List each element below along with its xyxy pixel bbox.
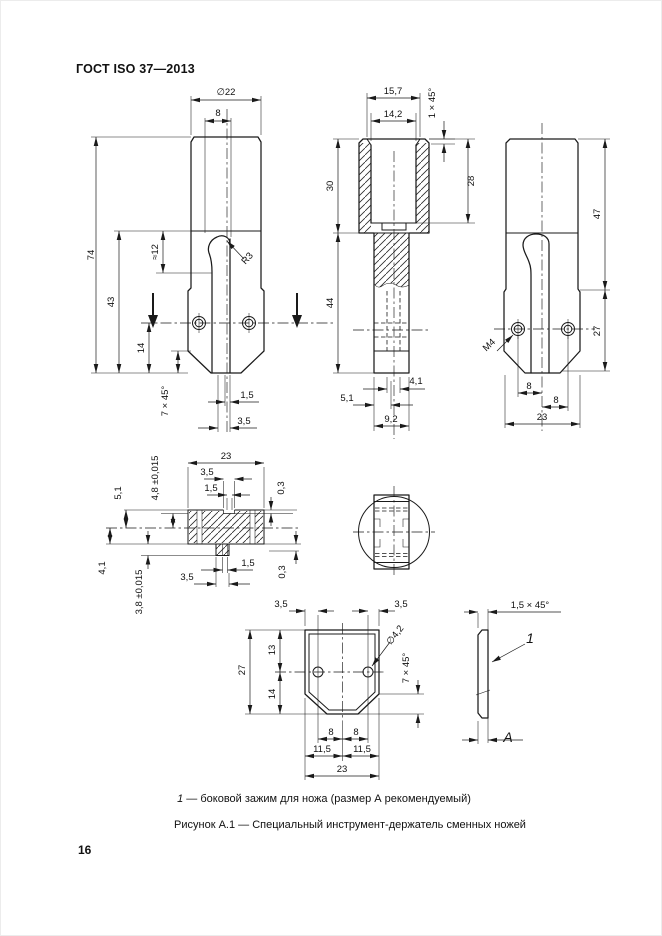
dim-side-8l: 8 xyxy=(526,381,531,392)
section-view: 15,7 14,2 1 × 45° 30 44 28 4,1 5,1 xyxy=(325,86,477,439)
dim-side-23: 23 xyxy=(537,412,548,423)
dim-clamp-35l: 3,5 xyxy=(274,599,287,610)
dim-front-35: 3,5 xyxy=(237,416,250,427)
dim-side-27: 27 xyxy=(592,326,603,337)
front-view: ∅22 8 74 43 ≈12 R3 14 7 × 45° 1,5 xyxy=(86,87,333,435)
dim-sec-28: 28 xyxy=(466,176,477,187)
dim-side-47: 47 xyxy=(592,209,603,220)
dim-sec-51: 5,1 xyxy=(340,393,353,404)
dim-clamp-27: 27 xyxy=(237,665,248,676)
dim-sec-chamfer: 1 × 45° xyxy=(427,88,438,119)
dim-clamp-14: 14 xyxy=(267,689,278,700)
page-number: 16 xyxy=(78,843,91,857)
dim-plan-slot: 1,5 xyxy=(204,483,217,494)
dim-side-8r: 8 xyxy=(553,395,558,406)
dim-plan-51: 5,1 xyxy=(113,486,124,499)
dim-clamp-115r: 11,5 xyxy=(353,744,371,755)
dim-plan-35b: 3,5 xyxy=(180,572,193,583)
dim-clamp-chamfer: 7 × 45° xyxy=(401,653,412,684)
dim-plan-notch: 3,5 xyxy=(200,467,213,478)
dim-plan-03t: 0,3 xyxy=(276,481,287,494)
document-page: ∅22 8 74 43 ≈12 R3 14 7 × 45° 1,5 xyxy=(0,0,662,936)
legend-text: — боковой зажим для ножа (размер А реком… xyxy=(183,793,471,805)
round-view xyxy=(353,486,435,578)
page-header: ГОСТ ISO 37—2013 xyxy=(76,62,195,76)
dim-sec-157: 15,7 xyxy=(384,86,403,97)
plan-section-view: 23 3,5 1,5 0,3 5,1 4,8 ±0,015 4,1 3,8 ±0… xyxy=(97,451,301,614)
dim-front-14: 14 xyxy=(136,343,147,354)
figure-legend: 1 — боковой зажим для ножа (размер А рек… xyxy=(1,793,647,805)
dim-sec-142: 14,2 xyxy=(384,109,403,120)
plate-view: 1,5 × 45° 1 A xyxy=(462,600,561,745)
dim-front-74: 74 xyxy=(86,250,97,261)
side-view: M4 47 27 8 8 23 xyxy=(481,123,610,431)
dim-clamp-8r: 8 xyxy=(353,727,358,738)
dim-front-slot8: 8 xyxy=(215,108,220,119)
clamp-view: ∅4,2 7 × 45° 27 13 14 3,5 3,5 8 8 11,5 1… xyxy=(237,599,424,780)
dim-front-12: ≈12 xyxy=(150,244,161,260)
dim-plan-15b: 1,5 xyxy=(241,558,254,569)
dim-front-43: 43 xyxy=(106,297,117,308)
dim-plan-38: 3,8 ±0,015 xyxy=(134,570,145,615)
dim-clamp-dia: ∅4,2 xyxy=(384,623,406,647)
part-ref-label: 1 xyxy=(526,630,534,646)
figure-caption: Рисунок А.1 — Специальный инструмент-дер… xyxy=(37,819,662,831)
dim-clamp-115l: 11,5 xyxy=(313,744,331,755)
dim-front-chamfer: 7 × 45° xyxy=(160,386,171,417)
dim-plan-03b: 0,3 xyxy=(277,565,288,578)
dim-front-15: 1,5 xyxy=(240,390,253,401)
dim-plate-a: A xyxy=(502,729,512,745)
side-slot xyxy=(523,234,549,373)
dim-sec-30: 30 xyxy=(325,181,336,192)
dim-plan-41: 4,1 xyxy=(97,561,108,574)
plate-outline xyxy=(478,630,488,718)
dim-sec-41: 4,1 xyxy=(409,376,422,387)
dim-sec-92: 9,2 xyxy=(384,414,397,425)
dim-plan-23: 23 xyxy=(221,451,232,462)
dim-plate-chamfer: 1,5 × 45° xyxy=(511,600,550,611)
dim-front-r3: R3 xyxy=(239,250,255,266)
dim-plan-48: 4,8 ±0,015 xyxy=(150,456,161,501)
dim-clamp-13: 13 xyxy=(267,645,278,656)
dim-sec-44: 44 xyxy=(325,298,336,309)
dim-clamp-35r: 3,5 xyxy=(394,599,407,610)
dim-front-dia: ∅22 xyxy=(217,87,236,98)
dim-clamp-8l: 8 xyxy=(328,727,333,738)
dim-side-m4: M4 xyxy=(481,337,498,354)
dim-clamp-23: 23 xyxy=(337,764,348,775)
